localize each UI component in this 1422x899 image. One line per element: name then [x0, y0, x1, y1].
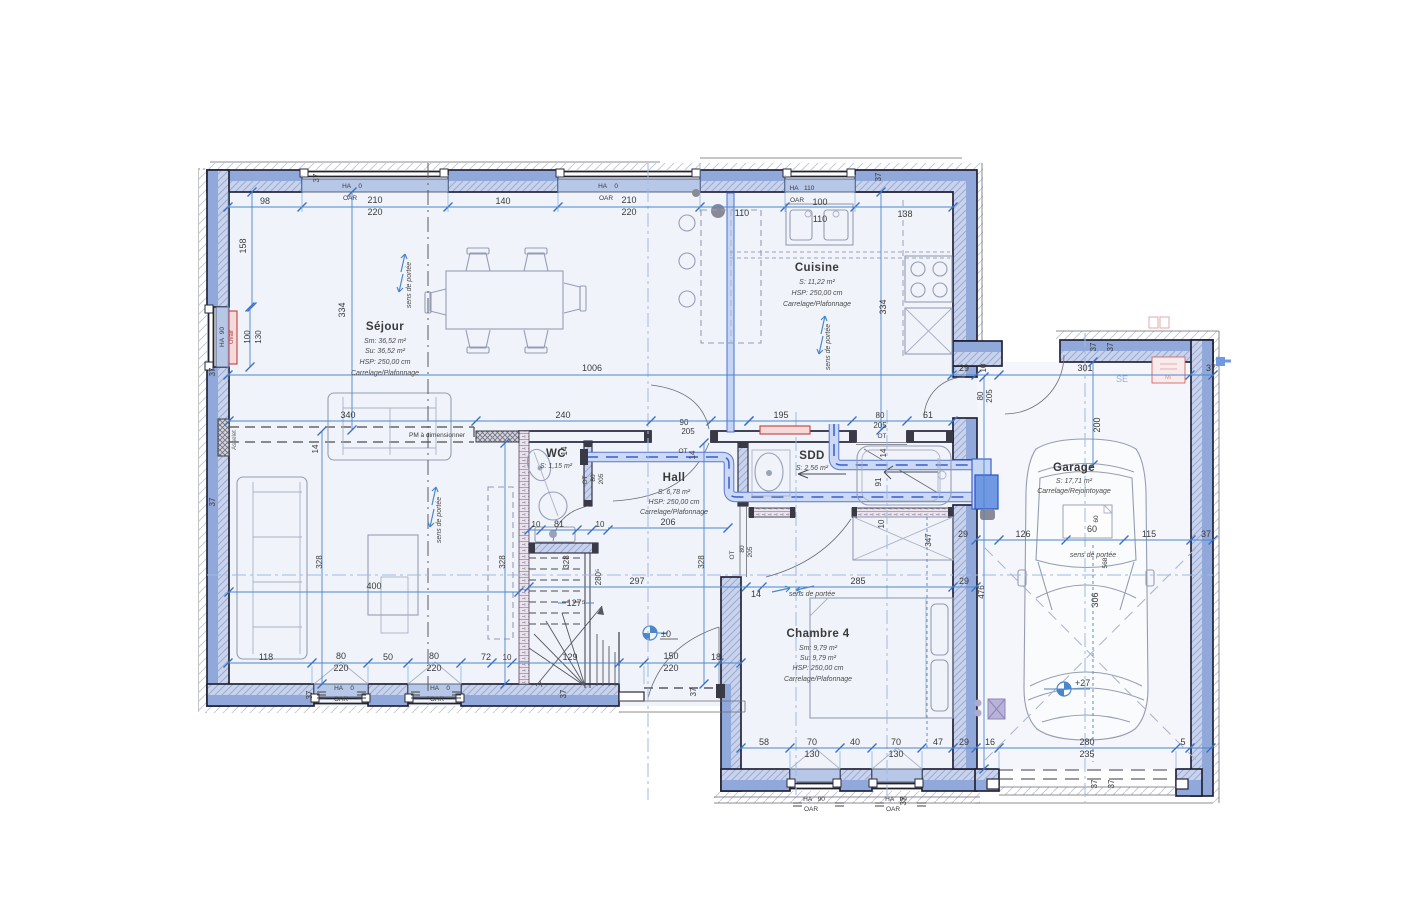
svg-text:16: 16 [985, 737, 995, 747]
svg-text:127⁵: 127⁵ [567, 598, 586, 608]
svg-text:285: 285 [850, 576, 865, 586]
svg-text:HA 0: HA 0 [430, 685, 450, 692]
svg-text:Garage: Garage [1053, 462, 1095, 474]
svg-text:205: 205 [681, 427, 695, 436]
svg-text:Carrelage/Plafonnage: Carrelage/Plafonnage [783, 301, 851, 308]
svg-text:37: 37 [874, 172, 883, 181]
svg-text:WC: WC [546, 448, 566, 460]
svg-text:14: 14 [688, 450, 697, 459]
svg-text:Carrelage/Rejointoyage: Carrelage/Rejointoyage [1037, 488, 1111, 495]
svg-text:347: 347 [924, 533, 933, 547]
svg-text:29: 29 [959, 737, 969, 747]
svg-text:37: 37 [689, 687, 698, 696]
svg-text:37: 37 [208, 497, 217, 506]
svg-text:220: 220 [663, 663, 678, 673]
svg-text:138: 138 [897, 209, 912, 219]
svg-text:HSP: 250,00 cm: HSP: 250,00 cm [360, 359, 411, 366]
svg-text:476: 476 [977, 585, 986, 599]
svg-text:80: 80 [739, 545, 746, 553]
svg-text:OT: OT [582, 475, 589, 484]
svg-text:80: 80 [429, 651, 439, 661]
svg-text:328: 328 [315, 555, 324, 569]
svg-text:37: 37 [305, 690, 314, 699]
svg-text:18: 18 [711, 652, 721, 662]
svg-text:Hall: Hall [663, 472, 686, 484]
svg-text:HSP: 250,00 cm: HSP: 250,00 cm [793, 665, 844, 672]
svg-text:HA 0: HA 0 [598, 183, 618, 190]
svg-text:37: 37 [208, 367, 217, 376]
svg-text:37: 37 [1089, 342, 1098, 351]
svg-text:98: 98 [260, 196, 270, 206]
svg-text:Carrelage/Plafonnage: Carrelage/Plafonnage [351, 370, 419, 377]
svg-text:220: 220 [621, 207, 636, 217]
svg-text:±0: ±0 [661, 629, 671, 639]
svg-text:130: 130 [888, 749, 903, 759]
svg-text:220: 220 [367, 207, 382, 217]
svg-text:OAR: OAR [886, 806, 900, 813]
svg-text:210: 210 [621, 195, 636, 205]
svg-text:sens de portée: sens de portée [825, 324, 832, 370]
svg-text:OAR: OAR [599, 195, 613, 202]
svg-text:Carrelage/Plafonnage: Carrelage/Plafonnage [640, 509, 708, 516]
svg-text:Sm: 36,52 m²: Sm: 36,52 m² [364, 338, 407, 345]
svg-text:37: 37 [312, 173, 321, 182]
svg-text:Ovair: Ovair [229, 330, 235, 344]
svg-text:158: 158 [238, 238, 248, 253]
svg-text:220: 220 [333, 663, 348, 673]
svg-text:10: 10 [532, 520, 541, 529]
svg-text:129: 129 [562, 652, 577, 662]
svg-text:HSP: 250,00 cm: HSP: 250,00 cm [649, 499, 700, 506]
svg-text:Sm: 9,79 m²: Sm: 9,79 m² [799, 645, 838, 652]
svg-text:118: 118 [259, 652, 273, 662]
svg-text:400: 400 [366, 581, 381, 591]
svg-text:HA 90: HA 90 [885, 796, 907, 803]
svg-text:50: 50 [383, 652, 393, 662]
svg-text:sens de portée: sens de portée [1070, 552, 1116, 559]
svg-text:OAR: OAR [343, 195, 357, 202]
svg-text:37: 37 [559, 689, 568, 698]
svg-text:200: 200 [1092, 417, 1102, 432]
svg-text:Carrelage/Plafonnage: Carrelage/Plafonnage [784, 676, 852, 683]
svg-text:S: 6,78 m²: S: 6,78 m² [658, 489, 691, 496]
svg-text:HA 0: HA 0 [342, 183, 362, 190]
svg-text:OAR: OAR [804, 806, 818, 813]
svg-text:334: 334 [878, 299, 888, 314]
svg-text:100: 100 [243, 330, 252, 344]
svg-text:SDD: SDD [799, 450, 824, 462]
svg-text:205: 205 [873, 421, 887, 430]
svg-text:29: 29 [959, 363, 969, 373]
svg-text:328: 328 [498, 555, 507, 569]
svg-text:+27: +27 [1075, 678, 1090, 688]
svg-text:Cuisine: Cuisine [795, 262, 839, 274]
svg-text:SE: SE [1116, 374, 1128, 384]
svg-text:297: 297 [629, 576, 644, 586]
svg-text:OT: OT [729, 550, 736, 559]
svg-text:115: 115 [1142, 529, 1156, 539]
svg-text:72: 72 [481, 652, 491, 662]
svg-text:HA 0: HA 0 [334, 685, 354, 692]
svg-text:Mi: Mi [1165, 375, 1171, 381]
svg-text:206: 206 [660, 517, 675, 527]
svg-text:126: 126 [1015, 529, 1030, 539]
svg-text:47: 47 [933, 737, 943, 747]
svg-text:80: 80 [876, 411, 885, 420]
svg-text:37: 37 [1107, 779, 1116, 788]
svg-text:29: 29 [958, 529, 968, 539]
svg-text:90: 90 [680, 418, 689, 427]
svg-text:S: 2,56 m²: S: 2,56 m² [796, 465, 829, 472]
svg-text:150: 150 [663, 651, 678, 661]
svg-text:110: 110 [735, 208, 749, 218]
svg-text:sens de portée: sens de portée [789, 591, 835, 598]
svg-text:10: 10 [503, 653, 512, 662]
svg-text:OT: OT [877, 433, 886, 440]
svg-text:PM à dimensionner: PM à dimensionner [409, 432, 466, 439]
svg-text:HSP: 250,00 cm: HSP: 250,00 cm [792, 290, 843, 297]
svg-text:280⁵: 280⁵ [594, 569, 603, 586]
svg-text:80: 80 [590, 474, 597, 482]
svg-text:37: 37 [1106, 342, 1115, 351]
svg-text:sens de portée: sens de portée [406, 262, 413, 308]
svg-text:5: 5 [1180, 737, 1185, 747]
svg-text:1006: 1006 [582, 363, 602, 373]
svg-text:sens de portée: sens de portée [436, 497, 443, 543]
svg-text:OAR: OAR [430, 696, 444, 703]
svg-text:OAR: OAR [334, 696, 348, 703]
svg-text:91: 91 [874, 477, 883, 486]
svg-text:60: 60 [1093, 515, 1100, 523]
svg-text:58: 58 [759, 737, 769, 747]
svg-text:328: 328 [697, 555, 706, 569]
svg-text:210: 210 [367, 195, 382, 205]
svg-text:HA 90: HA 90 [803, 796, 825, 803]
svg-text:140: 140 [495, 196, 510, 206]
svg-text:100: 100 [812, 197, 827, 207]
svg-text:205: 205 [747, 546, 754, 557]
svg-text:130: 130 [254, 330, 263, 344]
svg-text:OAR: OAR [790, 197, 804, 204]
svg-text:40: 40 [850, 737, 860, 747]
svg-text:235: 235 [1079, 749, 1094, 759]
svg-text:334: 334 [337, 302, 347, 317]
svg-text:Chambre 4: Chambre 4 [786, 628, 849, 640]
svg-text:340: 340 [340, 410, 355, 420]
svg-text:OT: OT [678, 448, 687, 455]
svg-text:110: 110 [813, 214, 827, 224]
svg-text:Su: 36,52 m²: Su: 36,52 m² [365, 348, 406, 355]
svg-text:60: 60 [1087, 524, 1097, 534]
svg-text:328: 328 [562, 555, 571, 569]
svg-text:HA 110: HA 110 [790, 185, 815, 192]
svg-text:14: 14 [751, 589, 761, 599]
svg-text:10: 10 [979, 363, 988, 372]
svg-text:205: 205 [985, 389, 994, 403]
svg-text:10: 10 [877, 519, 886, 528]
svg-text:10: 10 [596, 520, 605, 529]
svg-text:240: 240 [555, 410, 570, 420]
svg-text:80: 80 [336, 651, 346, 661]
svg-text:130: 130 [804, 749, 819, 759]
svg-text:37: 37 [1206, 363, 1216, 373]
svg-text:Su: 9,79 m²: Su: 9,79 m² [800, 655, 837, 662]
svg-text:61: 61 [923, 410, 933, 420]
svg-text:14: 14 [879, 448, 888, 457]
svg-text:14: 14 [311, 444, 320, 453]
svg-text:205: 205 [598, 473, 605, 484]
svg-text:37: 37 [1090, 779, 1099, 788]
svg-text:S: 11,22 m²: S: 11,22 m² [799, 279, 835, 286]
svg-text:HA 90: HA 90 [219, 327, 226, 347]
svg-text:195: 195 [773, 410, 788, 420]
svg-text:81: 81 [554, 519, 564, 529]
svg-text:306: 306 [1090, 592, 1100, 607]
svg-text:S: 1,15 m²: S: 1,15 m² [540, 463, 573, 470]
svg-text:29: 29 [959, 576, 969, 586]
svg-text:70: 70 [891, 737, 901, 747]
svg-text:Séjour: Séjour [366, 321, 404, 333]
svg-text:Asselet: Asselet [232, 430, 238, 450]
svg-text:280: 280 [1079, 737, 1094, 747]
svg-text:220: 220 [426, 663, 441, 673]
svg-text:37: 37 [1201, 529, 1211, 539]
svg-text:70: 70 [807, 737, 817, 747]
svg-text:S: 17,71 m²: S: 17,71 m² [1056, 478, 1093, 485]
